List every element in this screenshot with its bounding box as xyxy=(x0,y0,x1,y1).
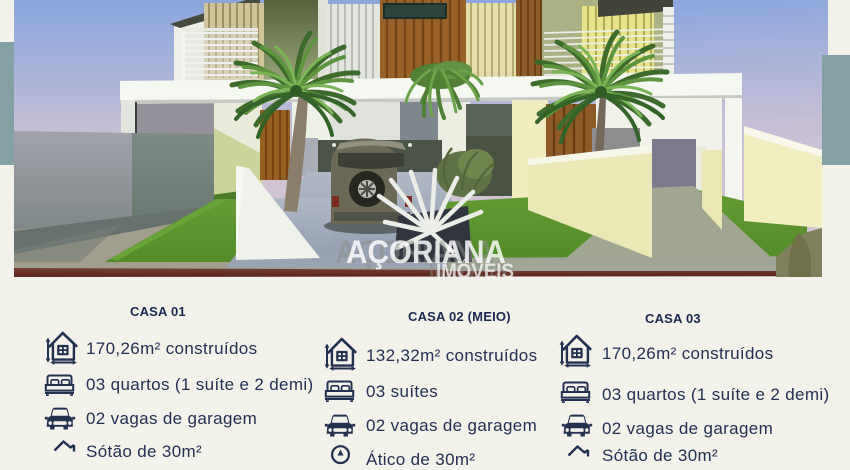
svg-text:IMÓVEIS: IMÓVEIS xyxy=(436,259,514,277)
